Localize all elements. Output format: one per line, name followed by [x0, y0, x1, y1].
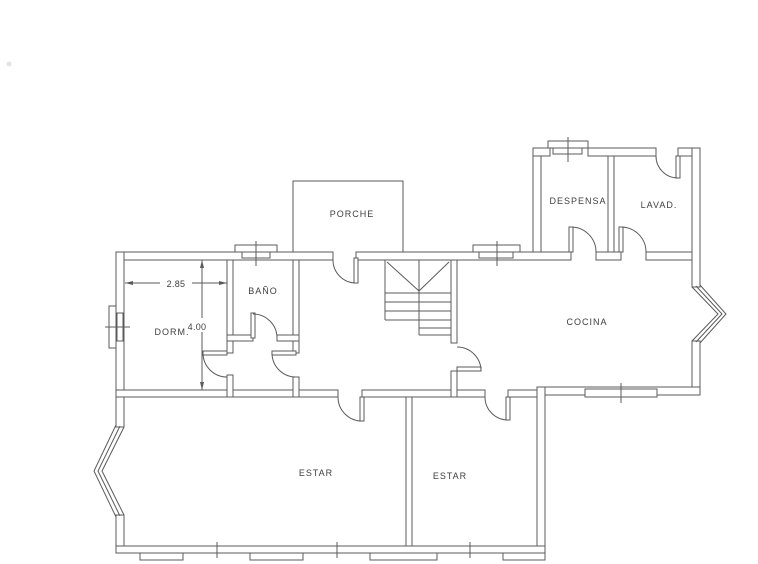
- room-label-cocina: COCINA: [566, 317, 607, 327]
- room-label-bano: BAÑO: [248, 286, 278, 296]
- room-label-lavadero: LAVAD.: [641, 200, 678, 210]
- room-label-despensa: DESPENSA: [549, 196, 606, 206]
- scan-artifact: [7, 62, 12, 67]
- room-label-dormitorio: DORM.: [155, 327, 190, 337]
- dimension-label-height: 4.00: [188, 322, 207, 332]
- room-label-estar-grande: ESTAR: [299, 468, 333, 478]
- floor-plan: PORCHE DESPENSA LAVAD. BAÑO DORM. COCINA…: [0, 0, 758, 564]
- room-label-estar-pequeno: ESTAR: [433, 471, 467, 481]
- dimension-label-width: 2.85: [167, 279, 186, 289]
- room-label-porche: PORCHE: [330, 209, 375, 219]
- bay-window-right: [692, 285, 726, 343]
- bay-window-left: [94, 425, 124, 517]
- scanned-floor-plan-page: PORCHE DESPENSA LAVAD. BAÑO DORM. COCINA…: [0, 0, 758, 564]
- stairs: [385, 260, 451, 335]
